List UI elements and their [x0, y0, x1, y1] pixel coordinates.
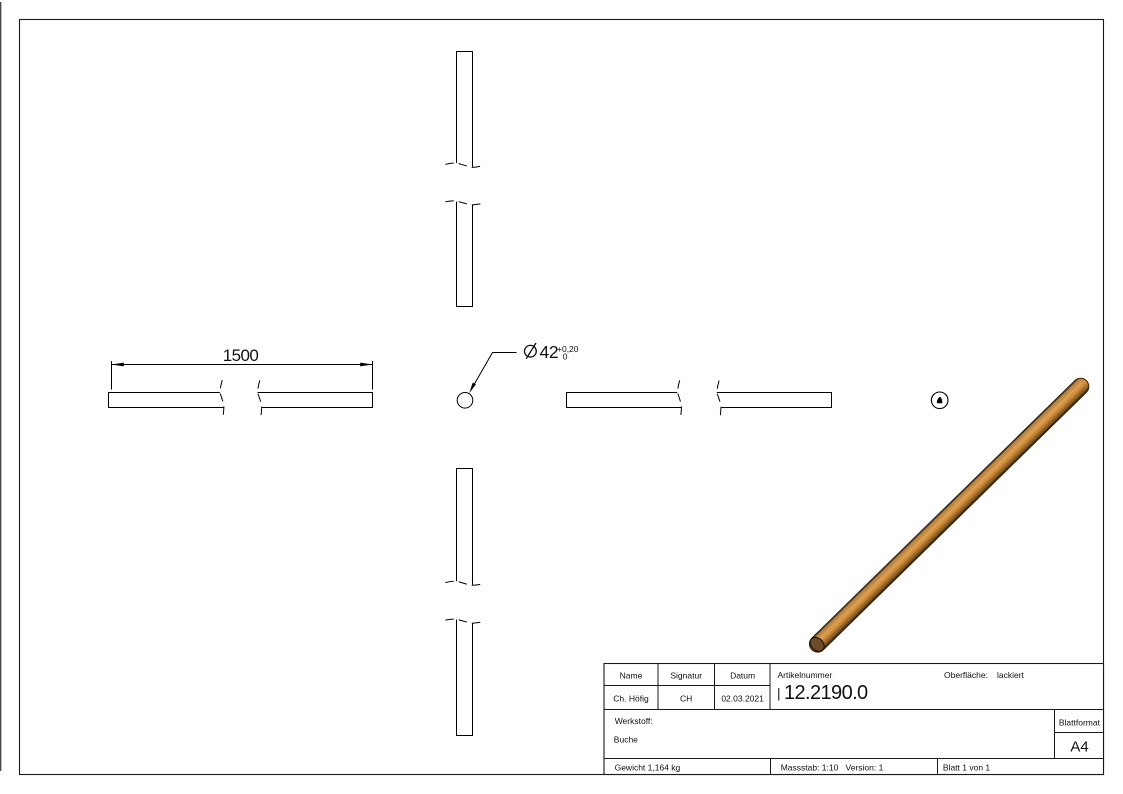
svg-text:Name: Name	[620, 670, 643, 680]
svg-text:CH: CH	[680, 694, 692, 704]
svg-text:Signatur: Signatur	[670, 670, 702, 680]
svg-text:Buche: Buche	[614, 735, 638, 745]
svg-text:Werkstoff:: Werkstoff:	[615, 716, 653, 726]
svg-text:Massstab: 1:10: Massstab: 1:10	[781, 763, 839, 773]
svg-text:1500: 1500	[223, 346, 259, 365]
svg-text:Ch. Höfig: Ch. Höfig	[613, 694, 649, 704]
svg-text:02.03.2021: 02.03.2021	[721, 694, 764, 704]
svg-text:Datum: Datum	[730, 670, 755, 680]
svg-text:Blatt 1 von 1: Blatt 1 von 1	[943, 763, 991, 773]
svg-text:12.2190.0: 12.2190.0	[784, 682, 868, 704]
svg-text:42: 42	[540, 342, 559, 362]
svg-text:Artikelnummer: Artikelnummer	[778, 670, 833, 680]
svg-text:Version: 1: Version: 1	[846, 763, 884, 773]
svg-text:Oberfläche:lackiert: Oberfläche:lackiert	[944, 670, 1025, 680]
svg-text:+0,20: +0,20	[557, 344, 579, 354]
svg-text:A4: A4	[1070, 739, 1088, 756]
svg-text:0: 0	[563, 352, 568, 362]
svg-text:Blattformat: Blattformat	[1059, 718, 1101, 728]
svg-text:Gewicht 1,164 kg: Gewicht 1,164 kg	[615, 763, 681, 773]
